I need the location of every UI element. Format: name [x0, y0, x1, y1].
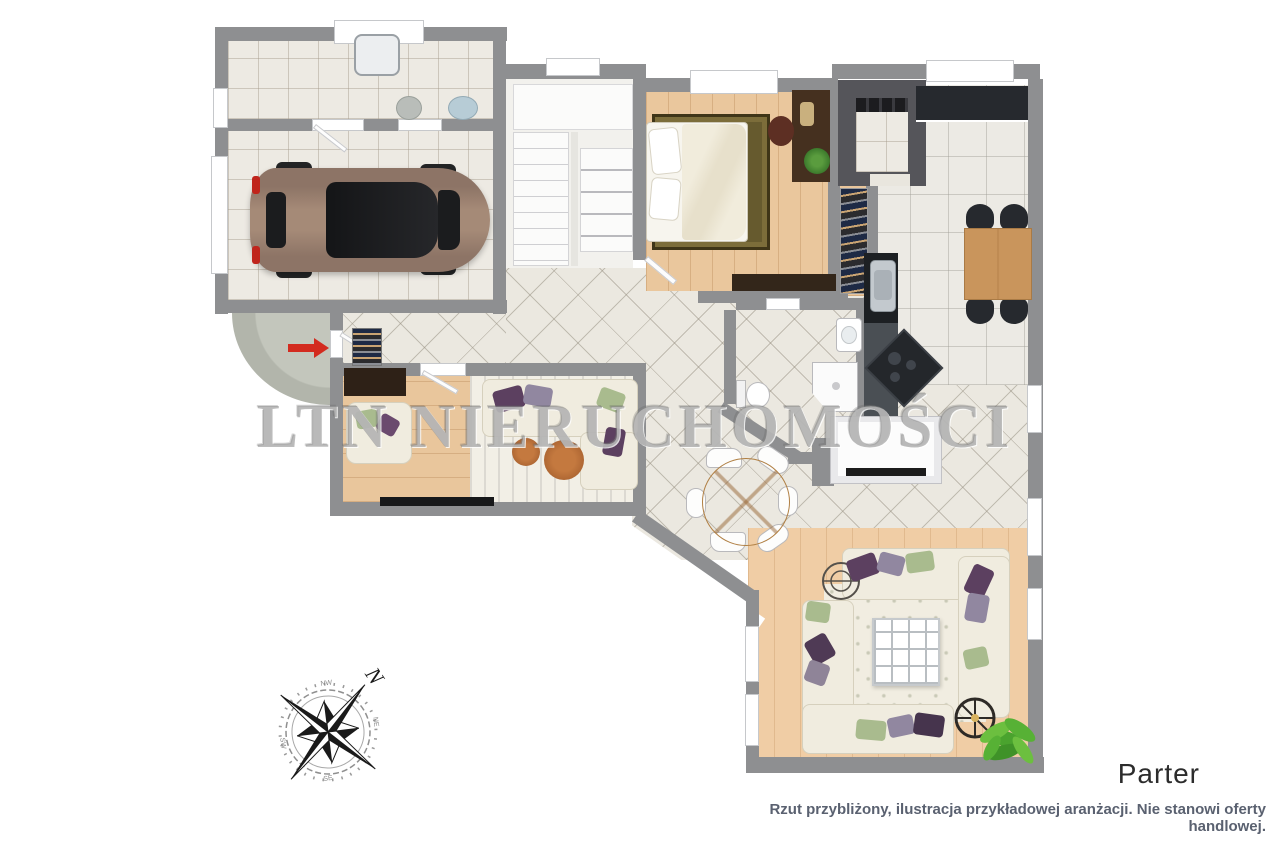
car-roof-glass	[326, 182, 438, 258]
utility-door-2	[398, 119, 442, 131]
bedroom-sideboard	[732, 274, 836, 291]
dining-table	[964, 228, 1032, 300]
living-plant-icon	[968, 702, 1048, 776]
round-dining-table	[702, 458, 790, 546]
garage-door	[211, 156, 228, 274]
tv	[380, 497, 494, 506]
living-pillow-10	[855, 719, 887, 742]
watermark: LTN NIERUCHOMOŚCI	[240, 392, 1030, 463]
grid-coffee-table	[872, 618, 940, 686]
floorplan-canvas: N NW NE SE SW LTN NIERUCHOMOŚCI Parter R…	[0, 0, 1280, 854]
bath-sink-bowl	[841, 326, 857, 344]
dining-chair-2	[1000, 204, 1028, 230]
compass-nw-label: NW	[320, 679, 333, 687]
cooktop-burner-1	[888, 352, 901, 365]
wall-garage-bottom	[215, 300, 507, 313]
stair-landing	[513, 84, 633, 130]
desk-chair	[768, 116, 794, 146]
shoe-rack	[352, 328, 382, 366]
appliance-gray	[396, 96, 422, 120]
cooktop-burner-3	[890, 372, 900, 382]
wall-bath-top	[736, 298, 870, 310]
wall-stair-bedroom	[633, 78, 646, 260]
kitchen-window-top	[926, 60, 1014, 82]
closet-opening	[870, 174, 910, 186]
bedroom-window	[690, 70, 778, 94]
living-window-west1	[745, 626, 759, 682]
bed-pillow-1	[648, 127, 683, 176]
compass-sw-label: SW	[278, 737, 286, 749]
kitchen-upper-cabinets	[916, 86, 1028, 122]
car-taillight-right	[252, 246, 260, 264]
closet-shelves	[856, 98, 908, 112]
fireplace-slot	[846, 468, 926, 476]
dining-chair-3	[966, 298, 994, 324]
water-heater	[354, 34, 400, 76]
dining-chair-4	[1000, 298, 1028, 324]
entry-arrow-icon	[288, 344, 314, 352]
cooktop-burner-2	[906, 360, 916, 370]
garage-side-window	[213, 88, 228, 128]
dining-chair-1	[966, 204, 994, 230]
living-window-east	[1027, 588, 1042, 640]
kitchen-sink-bowl	[874, 270, 892, 300]
living-window-west2	[745, 694, 759, 746]
floor-label: Parter	[1060, 758, 1200, 790]
compass-ne-label: NE	[371, 717, 379, 728]
shower-drain	[832, 382, 840, 390]
entry-arrow-head-icon	[314, 338, 329, 358]
stair-window	[546, 58, 600, 76]
car-windshield	[438, 190, 460, 250]
car-rear-window	[266, 192, 286, 248]
compass-se-label: SE	[323, 775, 333, 783]
disclaimer-text: Rzut przybliżony, ilustracja przykładowe…	[700, 801, 1266, 835]
wall-bath-left	[724, 310, 736, 404]
stair-flight-up	[580, 148, 633, 252]
appliance-blue	[448, 96, 478, 120]
bath-door	[766, 298, 800, 310]
living-pillow-3	[905, 550, 936, 574]
compass-rose-icon: N NW NE SE SW	[258, 656, 398, 801]
car-taillight-left	[252, 176, 260, 194]
stair-divider	[571, 132, 578, 266]
bed-duvet	[682, 124, 746, 240]
living-pillow-12	[913, 712, 946, 738]
desk-lamp	[800, 102, 814, 126]
kitchen-window-east2	[1027, 498, 1042, 556]
living-pillow-7	[805, 600, 832, 623]
bedroom-plant	[804, 148, 830, 174]
bed-pillow-2	[648, 177, 682, 221]
stair-flight-down	[513, 132, 569, 266]
